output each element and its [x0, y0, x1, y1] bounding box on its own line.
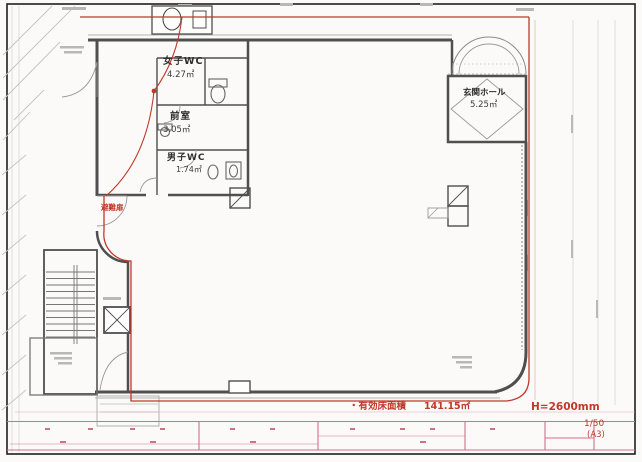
plan-linework — [0, 0, 642, 462]
red-boundary-lines — [80, 17, 535, 401]
ceiling-height-label: H=2600mm — [531, 402, 600, 413]
room-area-womens-wc: 4.27㎡ — [167, 71, 194, 80]
staircase — [46, 265, 95, 344]
pillar-right — [428, 186, 468, 226]
elevator-shaft — [104, 307, 130, 333]
urinal-fixture-icon — [208, 162, 241, 179]
drawing-scale: 1/50 — [584, 420, 604, 429]
room-label-womens-wc: 女子WC — [163, 57, 203, 67]
right-wall — [494, 142, 526, 392]
sheet-size: (A3) — [587, 431, 605, 440]
toilet-fixture-icon — [209, 79, 227, 103]
sheet-border — [7, 4, 635, 454]
room-label-entrance-hall: 玄関ホール — [463, 89, 506, 98]
site-hatching — [2, 6, 75, 410]
room-area-entrance-hall: 5.25㎡ — [470, 101, 497, 110]
evacuation-door-label: 避難扉 — [101, 204, 124, 212]
floor-plan-sheet: 女子WC 4.27㎡ 前室 3.05㎡ 男子WC 1.74㎡ 玄関ホール 5.2… — [0, 0, 642, 462]
room-area-mens-wc: 1.74㎡ — [176, 166, 202, 174]
room-label-anteroom: 前室 — [170, 112, 191, 122]
evacuation-route — [106, 17, 182, 196]
dimension-table — [7, 412, 635, 450]
floor-area-label: ・有効床面積 — [349, 402, 406, 412]
column — [229, 381, 250, 393]
entrance-canopy-arc — [452, 37, 526, 74]
floor-area-value: 141.15㎡ — [424, 402, 470, 412]
tiny-annotation-marks — [50, 3, 598, 369]
room-label-mens-wc: 男子WC — [167, 154, 206, 163]
dimension-digit-marks — [45, 428, 495, 443]
room-area-anteroom: 3.05㎡ — [163, 126, 190, 135]
lower-left-room — [30, 338, 97, 395]
pillar-center — [230, 188, 250, 208]
